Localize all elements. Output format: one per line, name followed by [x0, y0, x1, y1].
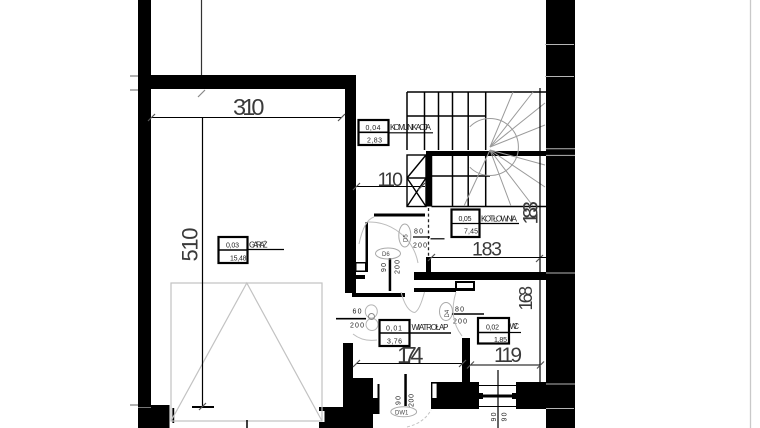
svg-text:0,02: 0,02 [486, 325, 499, 332]
svg-text:7,45: 7,45 [464, 229, 478, 236]
svg-text:183: 183 [472, 239, 502, 261]
svg-text:KOTŁOWNIA: KOTŁOWNIA [481, 215, 518, 224]
svg-text:200: 200 [350, 323, 364, 330]
svg-text:183: 183 [520, 201, 543, 225]
svg-text:80: 80 [414, 229, 423, 236]
svg-text:200: 200 [395, 260, 402, 274]
svg-text:168: 168 [516, 286, 536, 311]
svg-text:90: 90 [381, 263, 388, 272]
svg-text:90: 90 [502, 412, 509, 421]
svg-text:15,48: 15,48 [230, 256, 247, 263]
svg-text:310: 310 [233, 94, 265, 120]
svg-text:DW1: DW1 [395, 410, 409, 416]
svg-text:3,76: 3,76 [387, 339, 402, 346]
svg-text:90: 90 [396, 396, 403, 405]
svg-text:GARAŻ: GARAŻ [249, 241, 268, 250]
svg-text:0,04: 0,04 [366, 125, 381, 132]
svg-text:1,85: 1,85 [494, 337, 507, 344]
svg-text:0,05: 0,05 [459, 216, 472, 223]
svg-text:90: 90 [491, 412, 498, 421]
svg-text:0,03: 0,03 [226, 243, 239, 250]
svg-text:200: 200 [409, 394, 416, 407]
svg-text:510: 510 [178, 228, 203, 262]
svg-text:80: 80 [455, 307, 464, 314]
svg-text:WIATROŁAP: WIATROŁAP [412, 323, 449, 332]
svg-text:KOMUNIKACJA: KOMUNIKACJA [390, 123, 432, 132]
svg-text:2,83: 2,83 [367, 138, 382, 145]
svg-text:D5: D5 [404, 234, 410, 242]
svg-text:60: 60 [353, 309, 362, 316]
svg-text:D6: D6 [382, 252, 390, 258]
svg-text:0,01: 0,01 [386, 326, 402, 333]
svg-text:200: 200 [413, 243, 427, 250]
svg-text:D4: D4 [445, 309, 451, 317]
svg-text:WC: WC [510, 322, 520, 331]
svg-text:119: 119 [494, 344, 522, 367]
svg-text:110: 110 [378, 169, 404, 191]
